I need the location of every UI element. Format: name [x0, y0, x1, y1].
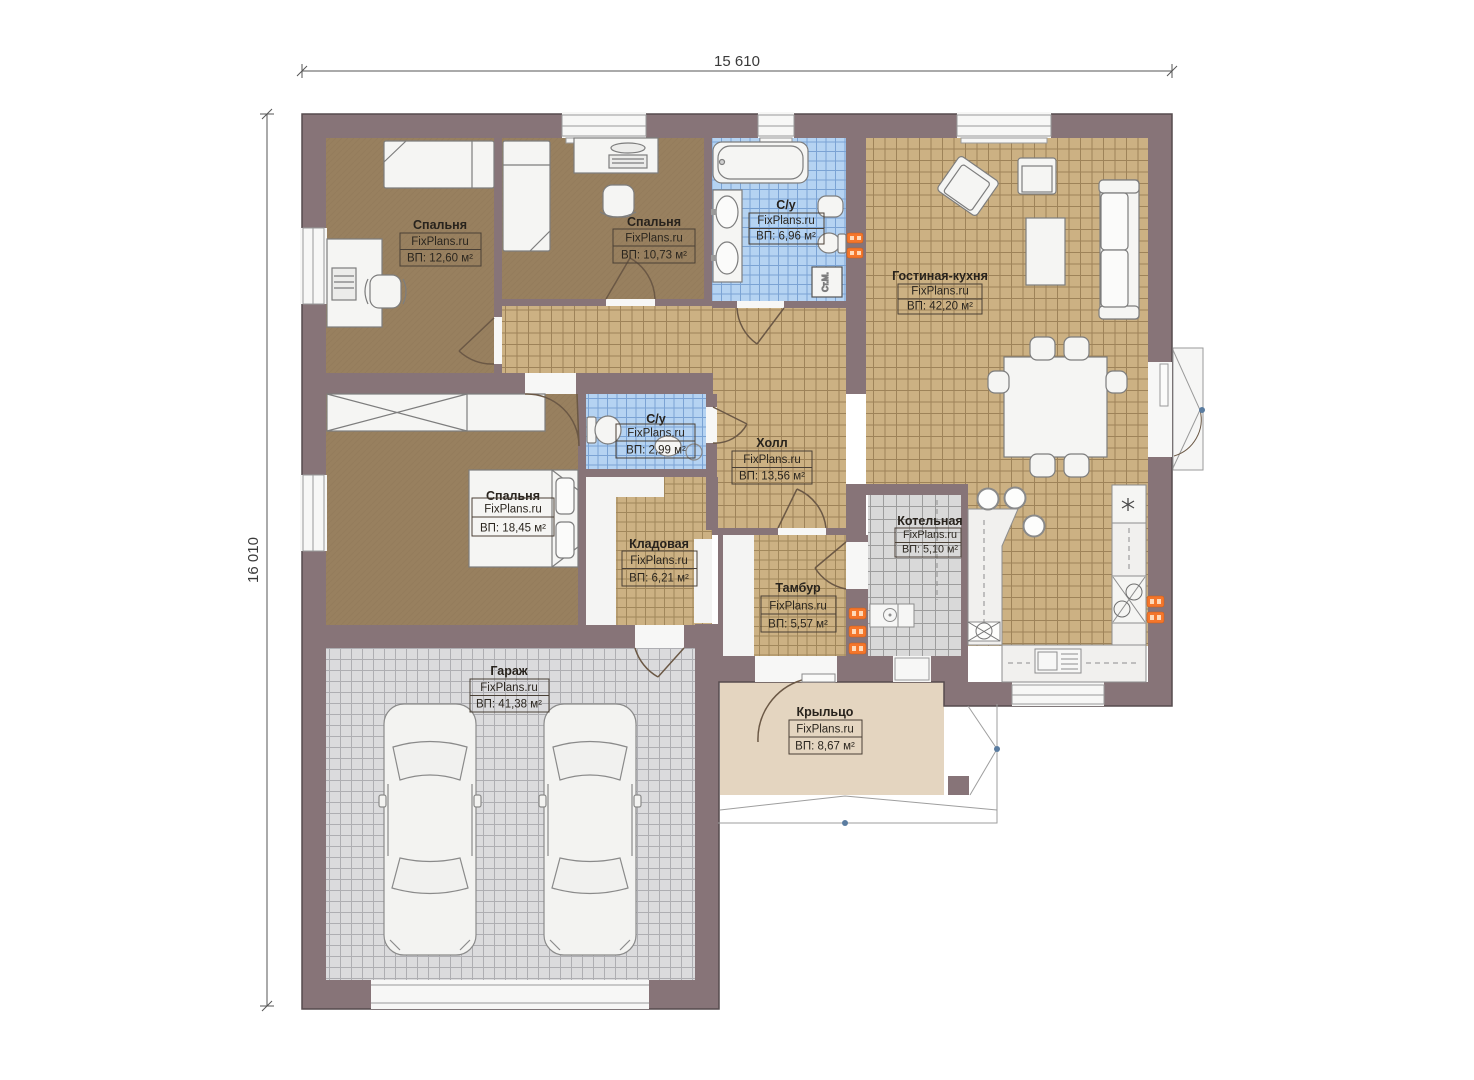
svg-text:ВП: 8,67 м²: ВП: 8,67 м² [795, 741, 855, 753]
svg-text:Холл: Холл [756, 436, 787, 450]
svg-text:FixPlans.ru: FixPlans.ru [769, 601, 827, 613]
svg-text:ВП: 6,96 м²: ВП: 6,96 м² [756, 231, 816, 243]
svg-text:Спальня: Спальня [413, 218, 467, 232]
svg-text:ВП: 18,45 м²: ВП: 18,45 м² [480, 523, 546, 535]
svg-text:FixPlans.ru: FixPlans.ru [627, 428, 685, 440]
svg-text:FixPlans.ru: FixPlans.ru [630, 555, 688, 567]
svg-text:Гараж: Гараж [490, 664, 527, 678]
svg-text:FixPlans.ru: FixPlans.ru [411, 236, 469, 248]
svg-text:Спальня: Спальня [627, 215, 681, 229]
svg-text:Ст.М.: Ст.М. [821, 272, 830, 292]
svg-text:Кладовая: Кладовая [629, 537, 689, 551]
svg-text:FixPlans.ru: FixPlans.ru [903, 529, 957, 541]
svg-text:ВП: 13,56 м²: ВП: 13,56 м² [739, 471, 805, 483]
svg-text:FixPlans.ru: FixPlans.ru [796, 724, 854, 736]
svg-text:FixPlans.ru: FixPlans.ru [480, 682, 538, 694]
svg-text:ВП: 10,73 м²: ВП: 10,73 м² [621, 250, 687, 262]
svg-text:Тамбур: Тамбур [775, 581, 821, 595]
svg-text:ВП: 6,21 м²: ВП: 6,21 м² [629, 573, 689, 585]
svg-text:ВП: 2,99 м²: ВП: 2,99 м² [626, 445, 686, 457]
svg-text:Гостиная-кухня: Гостиная-кухня [892, 269, 988, 283]
svg-text:16 010: 16 010 [245, 537, 262, 583]
svg-text:FixPlans.ru: FixPlans.ru [484, 504, 542, 516]
svg-text:ВП: 5,57 м²: ВП: 5,57 м² [768, 619, 828, 631]
svg-text:ВП: 42,20 м²: ВП: 42,20 м² [907, 301, 973, 313]
svg-text:FixPlans.ru: FixPlans.ru [625, 233, 683, 245]
svg-text:FixPlans.ru: FixPlans.ru [911, 286, 969, 298]
svg-text:Котельная: Котельная [897, 514, 962, 528]
svg-text:Крыльцо: Крыльцо [797, 705, 854, 719]
svg-text:FixPlans.ru: FixPlans.ru [757, 215, 815, 227]
svg-text:15 610: 15 610 [714, 53, 760, 70]
svg-text:FixPlans.ru: FixPlans.ru [743, 454, 801, 466]
svg-text:Спальня: Спальня [486, 489, 540, 503]
svg-text:ВП: 12,60 м²: ВП: 12,60 м² [407, 253, 473, 265]
svg-text:ВП: 5,10 м²: ВП: 5,10 м² [902, 544, 958, 556]
svg-text:ВП: 41,38 м²: ВП: 41,38 м² [476, 699, 542, 711]
svg-text:С/у: С/у [776, 198, 796, 212]
